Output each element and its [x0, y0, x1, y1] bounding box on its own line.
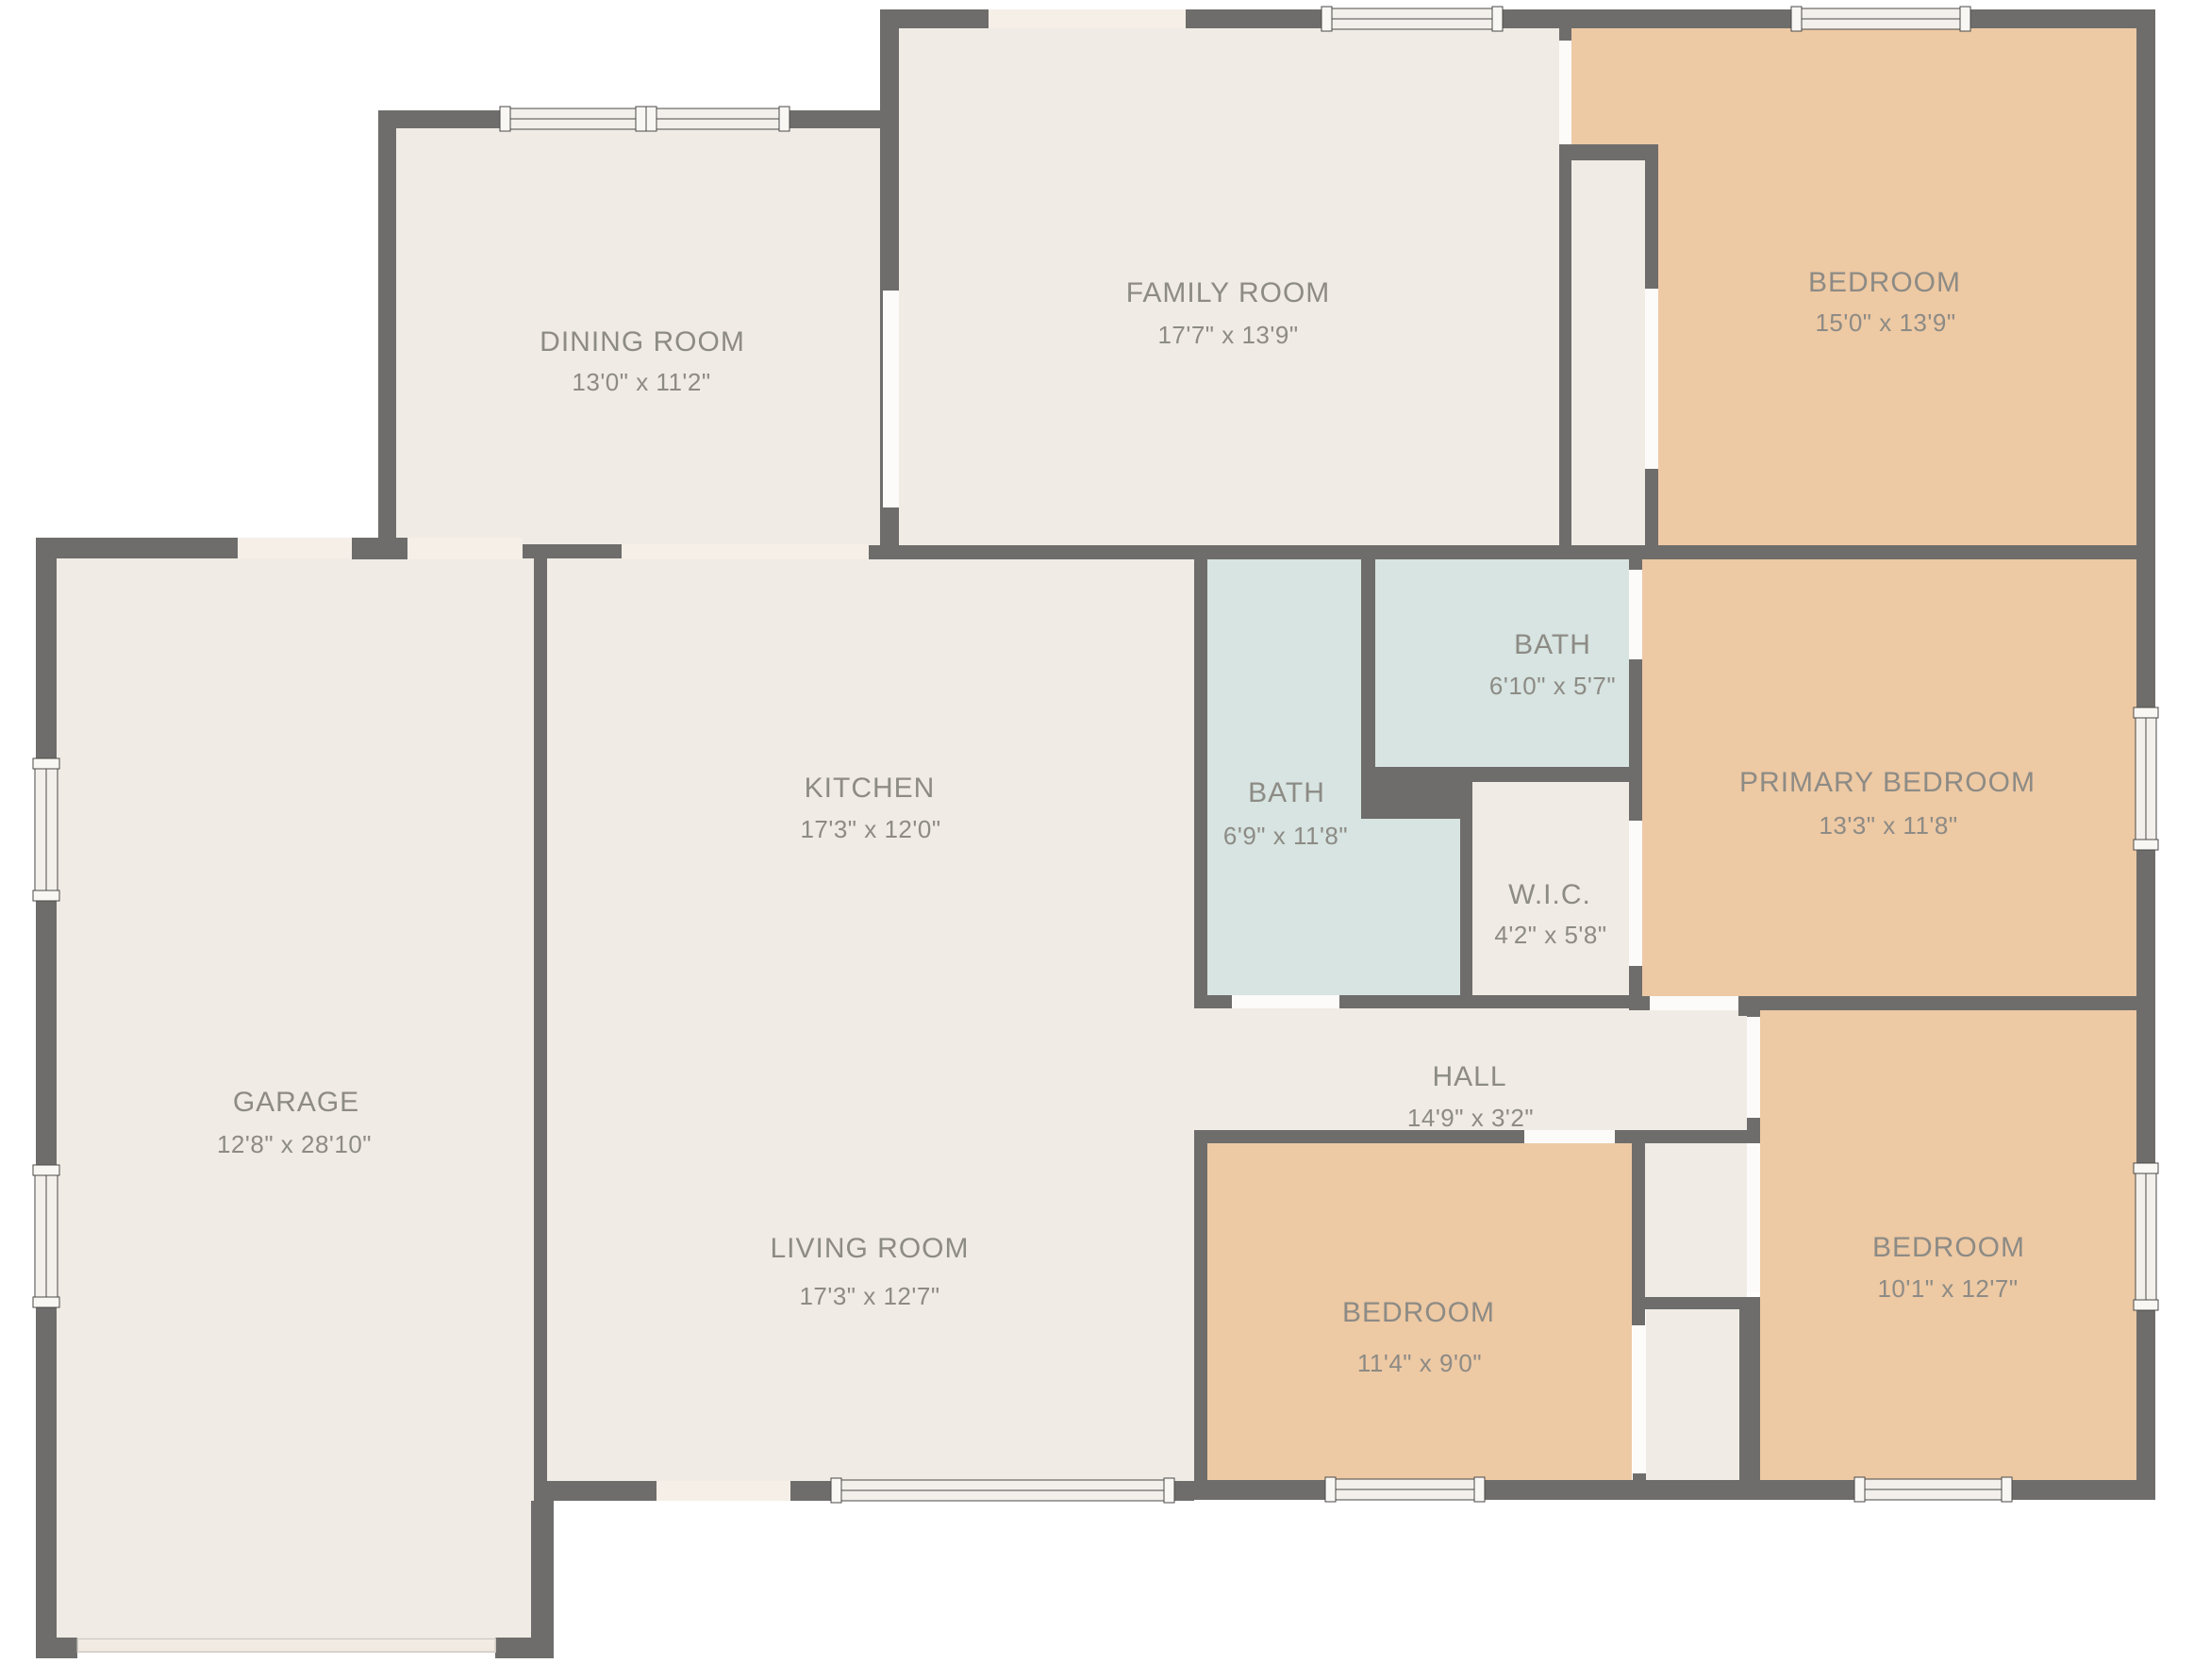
svg-text:BATH: BATH: [1248, 777, 1325, 808]
svg-text:GARAGE: GARAGE: [233, 1087, 359, 1118]
svg-text:14'9" x 3'2": 14'9" x 3'2": [1407, 1104, 1534, 1132]
svg-text:W.I.C.: W.I.C.: [1508, 879, 1591, 910]
svg-text:13'0" x 11'2": 13'0" x 11'2": [572, 368, 710, 396]
svg-text:15'0" x 13'9": 15'0" x 13'9": [1815, 308, 1955, 337]
svg-text:BEDROOM: BEDROOM: [1342, 1297, 1495, 1328]
svg-text:17'7" x 13'9": 17'7" x 13'9": [1157, 321, 1298, 349]
svg-text:6'9" x 11'8": 6'9" x 11'8": [1223, 822, 1348, 850]
svg-text:FAMILY ROOM: FAMILY ROOM: [1126, 277, 1331, 308]
svg-text:6'10" x 5'7": 6'10" x 5'7": [1489, 672, 1616, 700]
svg-text:HALL: HALL: [1432, 1061, 1506, 1092]
svg-text:KITCHEN: KITCHEN: [805, 773, 936, 804]
svg-text:DINING ROOM: DINING ROOM: [540, 326, 745, 358]
svg-text:BATH: BATH: [1514, 629, 1591, 660]
svg-text:BEDROOM: BEDROOM: [1808, 267, 1961, 298]
svg-text:17'3" x 12'0": 17'3" x 12'0": [800, 815, 940, 843]
svg-text:BEDROOM: BEDROOM: [1872, 1232, 2025, 1263]
svg-text:13'3" x 11'8": 13'3" x 11'8": [1819, 811, 1957, 840]
svg-text:17'3" x 12'7": 17'3" x 12'7": [799, 1282, 939, 1310]
svg-text:PRIMARY BEDROOM: PRIMARY BEDROOM: [1739, 767, 2036, 798]
svg-text:4'2" x 5'8": 4'2" x 5'8": [1494, 921, 1606, 949]
svg-text:11'4" x 9'0": 11'4" x 9'0": [1357, 1349, 1482, 1377]
svg-text:12'8" x 28'10": 12'8" x 28'10": [217, 1130, 372, 1158]
svg-text:10'1" x 12'7": 10'1" x 12'7": [1877, 1274, 2018, 1303]
svg-text:LIVING ROOM: LIVING ROOM: [770, 1233, 969, 1264]
